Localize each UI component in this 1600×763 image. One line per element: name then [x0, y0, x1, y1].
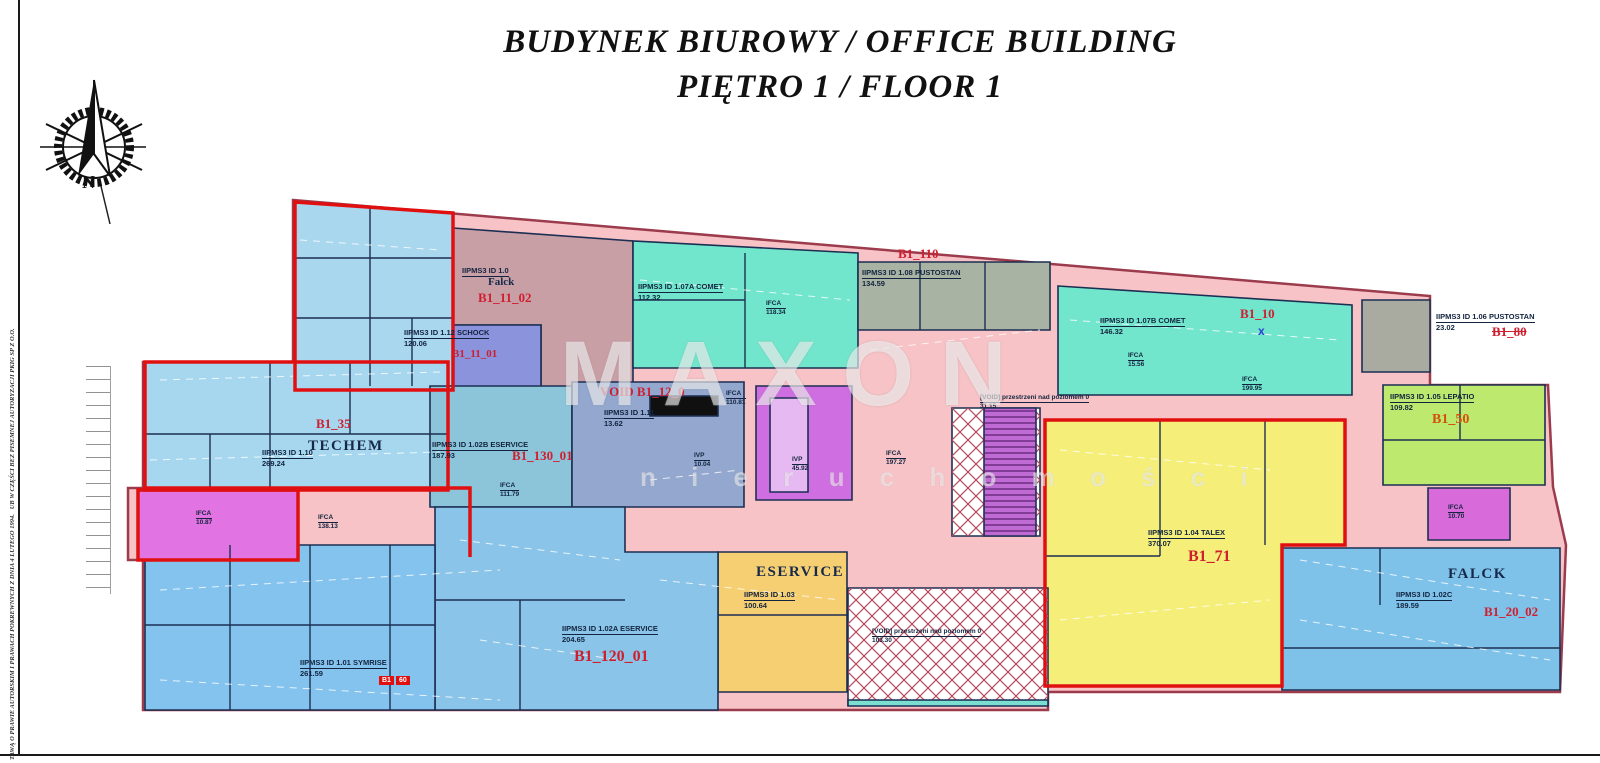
zone-cluster-nw	[295, 202, 453, 386]
dimension-ruler	[86, 366, 111, 594]
zone-schock	[453, 325, 541, 388]
floor-plan-canvas	[0, 0, 1600, 763]
zone-lepatio	[1383, 385, 1545, 485]
zone-elevator-block	[650, 396, 718, 416]
zone-core-stairs-inner	[770, 398, 808, 492]
zone-stair-top-pattern	[984, 408, 1036, 536]
floorplan-page: BUDYNEK BIUROWY / OFFICE BUILDING PIĘTRO…	[0, 0, 1600, 763]
zone-pustostan-106	[1362, 300, 1430, 372]
zone-symrise	[145, 545, 435, 710]
zone-teal-strip	[848, 700, 1048, 706]
zone-pustostan-108	[858, 262, 1050, 330]
zone-void-hatch-bottom-pattern	[848, 588, 1048, 705]
zone-falck-c	[1282, 548, 1560, 690]
zone-eservice-103	[718, 552, 847, 692]
zone-ifca-1070	[1428, 488, 1510, 540]
zone-stairs-left	[138, 490, 298, 560]
zone-comet-b	[1058, 286, 1352, 395]
